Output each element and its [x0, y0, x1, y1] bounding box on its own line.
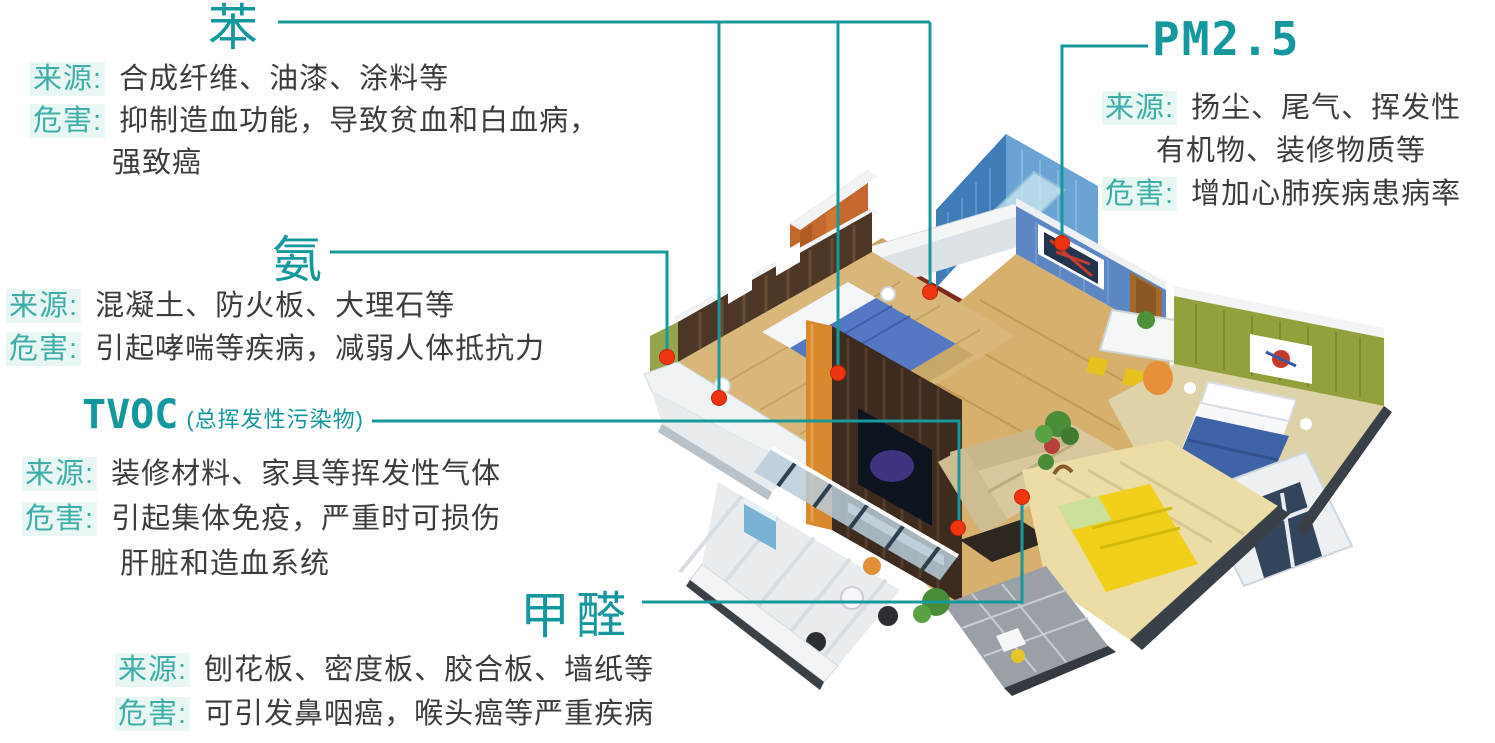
pollution-marker-dot-benzene-3 — [923, 285, 938, 300]
pm25-source-row: 来源:扬尘、尾气、挥发性 — [1102, 84, 1461, 126]
pollution-marker-dot-benzene-1 — [712, 391, 727, 406]
benzene-source-text: 合成纤维、油漆、涂料等 — [119, 63, 449, 95]
pm25-source-row-2: 有机物、装修物质等 — [1156, 127, 1426, 169]
benzene-hazard-text-2: 强致癌 — [112, 147, 202, 179]
table-plant — [1137, 311, 1155, 329]
tvoc-title-text: TVOC — [82, 392, 178, 438]
tvoc-subtitle: (总挥发性污染物) — [186, 402, 364, 438]
pollution-marker-dot-formaldehyde — [1015, 490, 1030, 505]
pollution-marker-dot-pm25 — [1055, 236, 1070, 251]
source-label: 来源: — [115, 653, 190, 687]
tvoc-hazard-text-1: 引起集体免疫，严重时可损伤 — [111, 503, 501, 535]
ammonia-source-row: 来源:混凝土、防火板、大理石等 — [6, 282, 455, 324]
formaldehyde-source-row: 来源:刨花板、密度板、胶合板、墙纸等 — [115, 646, 654, 688]
hazard-label: 危害: — [22, 502, 97, 536]
benzene-title: 苯 — [208, 0, 264, 60]
tvoc-hazard-text-2: 肝脏和造血系统 — [120, 548, 330, 580]
benzene-hazard-text-1: 抑制造血功能，导致贫血和白血病， — [119, 105, 599, 137]
formaldehyde-title: 甲醛 — [520, 576, 632, 648]
formaldehyde-hazard-text: 可引发鼻咽癌，喉头癌等严重疾病 — [204, 698, 654, 730]
ammonia-source-text: 混凝土、防火板、大理石等 — [95, 290, 455, 322]
ammonia-hazard-text: 引起哮喘等疾病，减弱人体抵抗力 — [95, 333, 545, 365]
pm25-title: PM2.5 — [1152, 12, 1300, 66]
formaldehyde-hazard-row: 危害:可引发鼻咽癌，喉头癌等严重疾病 — [115, 690, 654, 732]
tvoc-source-text: 装修材料、家具等挥发性气体 — [111, 458, 501, 490]
hazard-label: 危害: — [1102, 177, 1177, 211]
source-label: 来源: — [30, 62, 105, 96]
stool — [863, 557, 881, 575]
source-label: 来源: — [1102, 91, 1177, 125]
source-label: 来源: — [22, 457, 97, 491]
benzene-source-row: 来源:合成纤维、油漆、涂料等 — [30, 55, 449, 97]
hazard-label: 危害: — [6, 332, 81, 366]
benzene-hazard-row-2: 强致癌 — [112, 139, 202, 181]
pm25-hazard-text: 增加心肺疾病患病率 — [1191, 178, 1461, 210]
tvoc-hazard-row-2: 肝脏和造血系统 — [120, 540, 330, 582]
hazard-label: 危害: — [115, 697, 190, 731]
pm25-source-text-1: 扬尘、尾气、挥发性 — [1191, 92, 1461, 124]
tvoc-source-row: 来源:装修材料、家具等挥发性气体 — [22, 450, 501, 492]
benzene-hazard-row: 危害:抑制造血功能，导致贫血和白血病， — [30, 97, 599, 139]
infographic-canvas: 苯 来源:合成纤维、油漆、涂料等 危害:抑制造血功能，导致贫血和白血病， 强致癌… — [0, 0, 1495, 743]
formaldehyde-source-text: 刨花板、密度板、胶合板、墙纸等 — [204, 654, 654, 686]
pollution-marker-dot-tvoc — [951, 521, 966, 536]
orange-chair — [1143, 361, 1173, 395]
tvoc-title: TVOC (总挥发性污染物) — [82, 392, 364, 438]
tvoc-hazard-row: 危害:引起集体免疫，严重时可损伤 — [22, 495, 501, 537]
pm25-hazard-row: 危害:增加心肺疾病患病率 — [1102, 170, 1461, 212]
pollution-marker-dot-benzene-2 — [831, 366, 846, 381]
balcony-table — [841, 587, 863, 609]
ammonia-hazard-row: 危害:引起哮喘等疾病，减弱人体抵抗力 — [6, 325, 545, 367]
pollution-marker-dot-ammonia — [660, 350, 675, 365]
source-label: 来源: — [6, 289, 81, 323]
hazard-label: 危害: — [30, 104, 105, 138]
pm25-source-text-2: 有机物、装修物质等 — [1156, 135, 1426, 167]
